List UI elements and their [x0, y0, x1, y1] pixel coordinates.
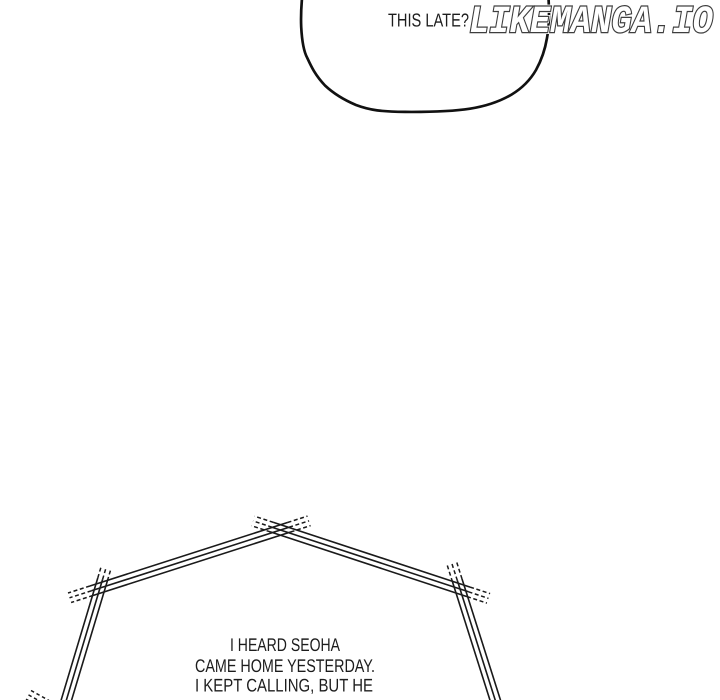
svg-text:THIS LATE?: THIS LATE?	[388, 9, 469, 30]
svg-text:I KEPT CALLING, BUT HE: I KEPT CALLING, BUT HE	[195, 675, 373, 696]
svg-text:LIKEMANGA.IO: LIKEMANGA.IO	[469, 0, 713, 44]
svg-text:I HEARD SEOHA: I HEARD SEOHA	[230, 634, 341, 655]
svg-text:CAME HOME YESTERDAY.: CAME HOME YESTERDAY.	[195, 655, 375, 676]
